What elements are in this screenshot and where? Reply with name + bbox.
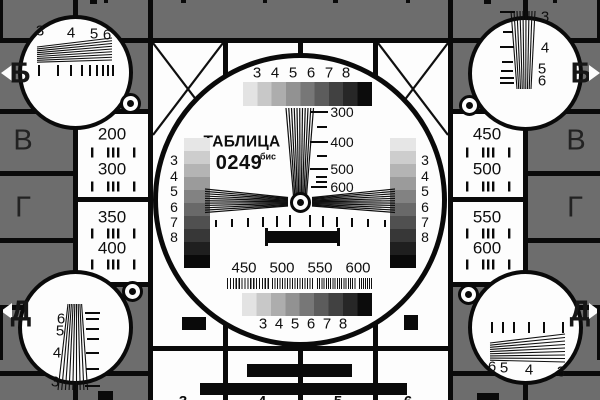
grayscale-column-left-label: 6 xyxy=(170,200,178,214)
cut-digit: 3 xyxy=(175,394,191,400)
sync-bar xyxy=(267,231,337,243)
tick xyxy=(528,322,530,333)
grayscale-top-label: 7 xyxy=(325,66,333,81)
sync-bar-cap xyxy=(337,228,340,246)
edge-fragment xyxy=(181,0,186,3)
grayscale-top-label: 3 xyxy=(253,66,261,81)
frequency-burst-band xyxy=(272,278,314,289)
grayscale-column-right-label: 8 xyxy=(421,230,429,244)
edge-fragment xyxy=(98,391,113,400)
corner-digit: 3 xyxy=(541,10,549,25)
tick xyxy=(85,312,100,314)
burst-label: 550 xyxy=(307,261,332,276)
wedge-tick xyxy=(310,141,328,144)
resolution-wedge-right xyxy=(311,187,396,215)
tick xyxy=(502,61,513,63)
grayscale-column-right-label: 3 xyxy=(421,153,429,167)
test-card: 3 4 5 6 7 8 300 400 500 600 ТАБЛИЦА 0249… xyxy=(0,0,600,400)
panel-value: 350 xyxy=(98,209,126,226)
line-tick-group xyxy=(465,147,511,158)
corner-digit: 6 xyxy=(488,360,496,375)
card-number: 0249 xyxy=(216,153,263,173)
grayscale-bottom-label: 4 xyxy=(275,317,283,332)
grayscale-column-left-label: 3 xyxy=(170,153,178,167)
panel-value: 400 xyxy=(98,240,126,257)
panel-value: 550 xyxy=(473,209,501,226)
tick xyxy=(57,65,59,76)
tick xyxy=(543,322,545,333)
resolution-wedge-left xyxy=(204,187,289,215)
tick xyxy=(336,217,338,227)
corner-digit: 4 xyxy=(53,346,61,361)
frequency-burst-band xyxy=(359,278,373,289)
cut-digit: 5 xyxy=(330,394,346,400)
row-arrow-icon xyxy=(589,65,600,81)
resolution-wedge-vertical xyxy=(283,107,317,197)
grayscale-column-right-label: 6 xyxy=(421,200,429,214)
grayscale-column-right-label: 7 xyxy=(421,215,429,229)
tick xyxy=(513,322,515,333)
tick xyxy=(500,46,514,48)
line-tick-group xyxy=(90,181,136,192)
wedge-tick xyxy=(310,168,328,171)
grid-line xyxy=(0,238,75,243)
frequency-burst-band xyxy=(227,278,269,289)
calibration-target-icon xyxy=(122,281,143,302)
edge-fragment xyxy=(553,0,557,3)
corner-digit: 4 xyxy=(541,41,549,56)
edge-fragment xyxy=(90,0,97,4)
grayscale-column-left-label: 5 xyxy=(170,184,178,198)
tick xyxy=(384,220,386,227)
grayscale-staircase-bottom xyxy=(242,293,372,316)
corner-digit: 3 xyxy=(557,365,565,380)
tick xyxy=(309,215,311,227)
burst-label: 450 xyxy=(231,261,256,276)
row-letter-right-g: Г xyxy=(567,194,583,223)
grayscale-bottom-label: 8 xyxy=(339,317,347,332)
tick xyxy=(86,352,99,354)
tick xyxy=(491,322,493,333)
tick xyxy=(38,65,40,76)
grayscale-column-left-label: 8 xyxy=(170,230,178,244)
grayscale-column-left-label: 4 xyxy=(170,169,178,183)
wedge-frequency-label: 500 xyxy=(330,162,353,176)
edge-fragment xyxy=(484,0,491,4)
tick xyxy=(500,77,514,79)
tick xyxy=(215,220,217,227)
tick xyxy=(247,218,249,227)
center-target-icon xyxy=(290,192,311,213)
tick xyxy=(86,368,99,370)
grayscale-top-label: 5 xyxy=(289,66,297,81)
tick xyxy=(500,82,514,84)
wedge-tick xyxy=(316,176,327,178)
grid-line xyxy=(75,197,150,202)
tick xyxy=(231,219,233,227)
tick xyxy=(502,322,504,333)
tick xyxy=(276,216,278,227)
row-letter-left-v: В xyxy=(13,127,32,156)
black-square-right xyxy=(404,315,418,330)
black-square-left xyxy=(182,317,206,330)
row-letter-left-b: Б xyxy=(10,60,31,89)
grayscale-top-label: 6 xyxy=(307,66,315,81)
tick xyxy=(500,11,515,13)
panel-value: 200 xyxy=(98,126,126,143)
corner-digit: 3 xyxy=(51,375,59,390)
wedge-tick xyxy=(317,155,327,157)
tick xyxy=(562,322,564,333)
grayscale-top-label: 4 xyxy=(271,66,279,81)
tick xyxy=(262,217,264,227)
wedge-frequency-label: 300 xyxy=(330,105,353,119)
tick xyxy=(501,70,513,72)
row-letter-left-d: Д xyxy=(11,298,32,327)
panel-value: 500 xyxy=(473,161,501,178)
tick xyxy=(351,218,353,227)
grayscale-column-left-label: 7 xyxy=(170,215,178,229)
line-tick-group xyxy=(90,147,136,158)
edge-fragment xyxy=(263,0,267,3)
grid-line xyxy=(0,171,75,176)
tick xyxy=(87,338,99,340)
tick xyxy=(81,65,83,76)
tick xyxy=(322,216,324,227)
tick xyxy=(86,318,99,320)
corner-digit: 5 xyxy=(56,324,64,339)
corner-digit: 4 xyxy=(525,363,533,378)
tick xyxy=(89,65,91,76)
tick xyxy=(503,31,513,33)
grayscale-bottom-label: 3 xyxy=(259,317,267,332)
burst-label: 500 xyxy=(269,261,294,276)
calibration-target-icon xyxy=(120,93,141,114)
tick xyxy=(289,215,291,227)
grayscale-staircase-top xyxy=(243,82,372,106)
frequency-fan-top-left xyxy=(36,33,114,67)
edge-fragment xyxy=(477,393,499,400)
calibration-target-icon xyxy=(459,95,480,116)
panel-value: 450 xyxy=(473,126,501,143)
card-number-suffix: бис xyxy=(260,152,276,161)
frequency-burst-band xyxy=(317,278,356,289)
grayscale-bottom-label: 7 xyxy=(323,317,331,332)
tick xyxy=(102,65,104,76)
tick xyxy=(70,65,72,76)
edge-fragment xyxy=(0,0,3,40)
panel-value: 600 xyxy=(473,240,501,257)
sync-bar-cap xyxy=(265,228,268,246)
edge-fragment xyxy=(406,0,410,3)
line-tick-group xyxy=(465,228,511,239)
tick xyxy=(86,328,99,330)
row-letter-left-g: Г xyxy=(15,194,31,223)
grayscale-bottom-label: 6 xyxy=(307,317,315,332)
line-tick-group xyxy=(465,259,511,270)
wedge-frequency-label: 400 xyxy=(330,135,353,149)
sync-bar-long xyxy=(200,383,407,395)
line-tick-group xyxy=(90,228,136,239)
wedge-tick xyxy=(316,181,327,183)
line-tick-group xyxy=(90,259,136,270)
tick xyxy=(107,65,109,76)
wedge-tick xyxy=(310,111,328,114)
corner-digit: 6 xyxy=(538,74,546,89)
burst-label: 600 xyxy=(345,261,370,276)
edge-fragment xyxy=(104,0,108,3)
panel-value: 300 xyxy=(98,161,126,178)
grayscale-column-right-label: 4 xyxy=(421,169,429,183)
grid-line xyxy=(450,197,525,202)
line-tick-group xyxy=(465,181,511,192)
row-letter-right-v: В xyxy=(566,127,585,156)
card-title: ТАБЛИЦА xyxy=(203,134,280,150)
grayscale-top-label: 8 xyxy=(342,66,350,81)
grayscale-bottom-label: 5 xyxy=(291,317,299,332)
calibration-target-icon xyxy=(458,284,479,305)
grid-line xyxy=(525,238,600,243)
wedge-tick xyxy=(317,126,327,128)
tick xyxy=(85,385,100,387)
edge-fragment xyxy=(333,0,338,3)
row-letter-right-d: Д xyxy=(570,298,591,327)
cut-digit: 4 xyxy=(254,394,270,400)
sync-bar-short xyxy=(247,364,352,377)
edge-fragment xyxy=(0,307,3,360)
grid-line xyxy=(525,171,600,176)
tick xyxy=(112,65,114,76)
corner-digit: 5 xyxy=(500,361,508,376)
tick xyxy=(367,219,369,227)
cut-digit: 6 xyxy=(400,394,416,400)
grayscale-column-right-label: 5 xyxy=(421,184,429,198)
tick xyxy=(96,65,98,76)
